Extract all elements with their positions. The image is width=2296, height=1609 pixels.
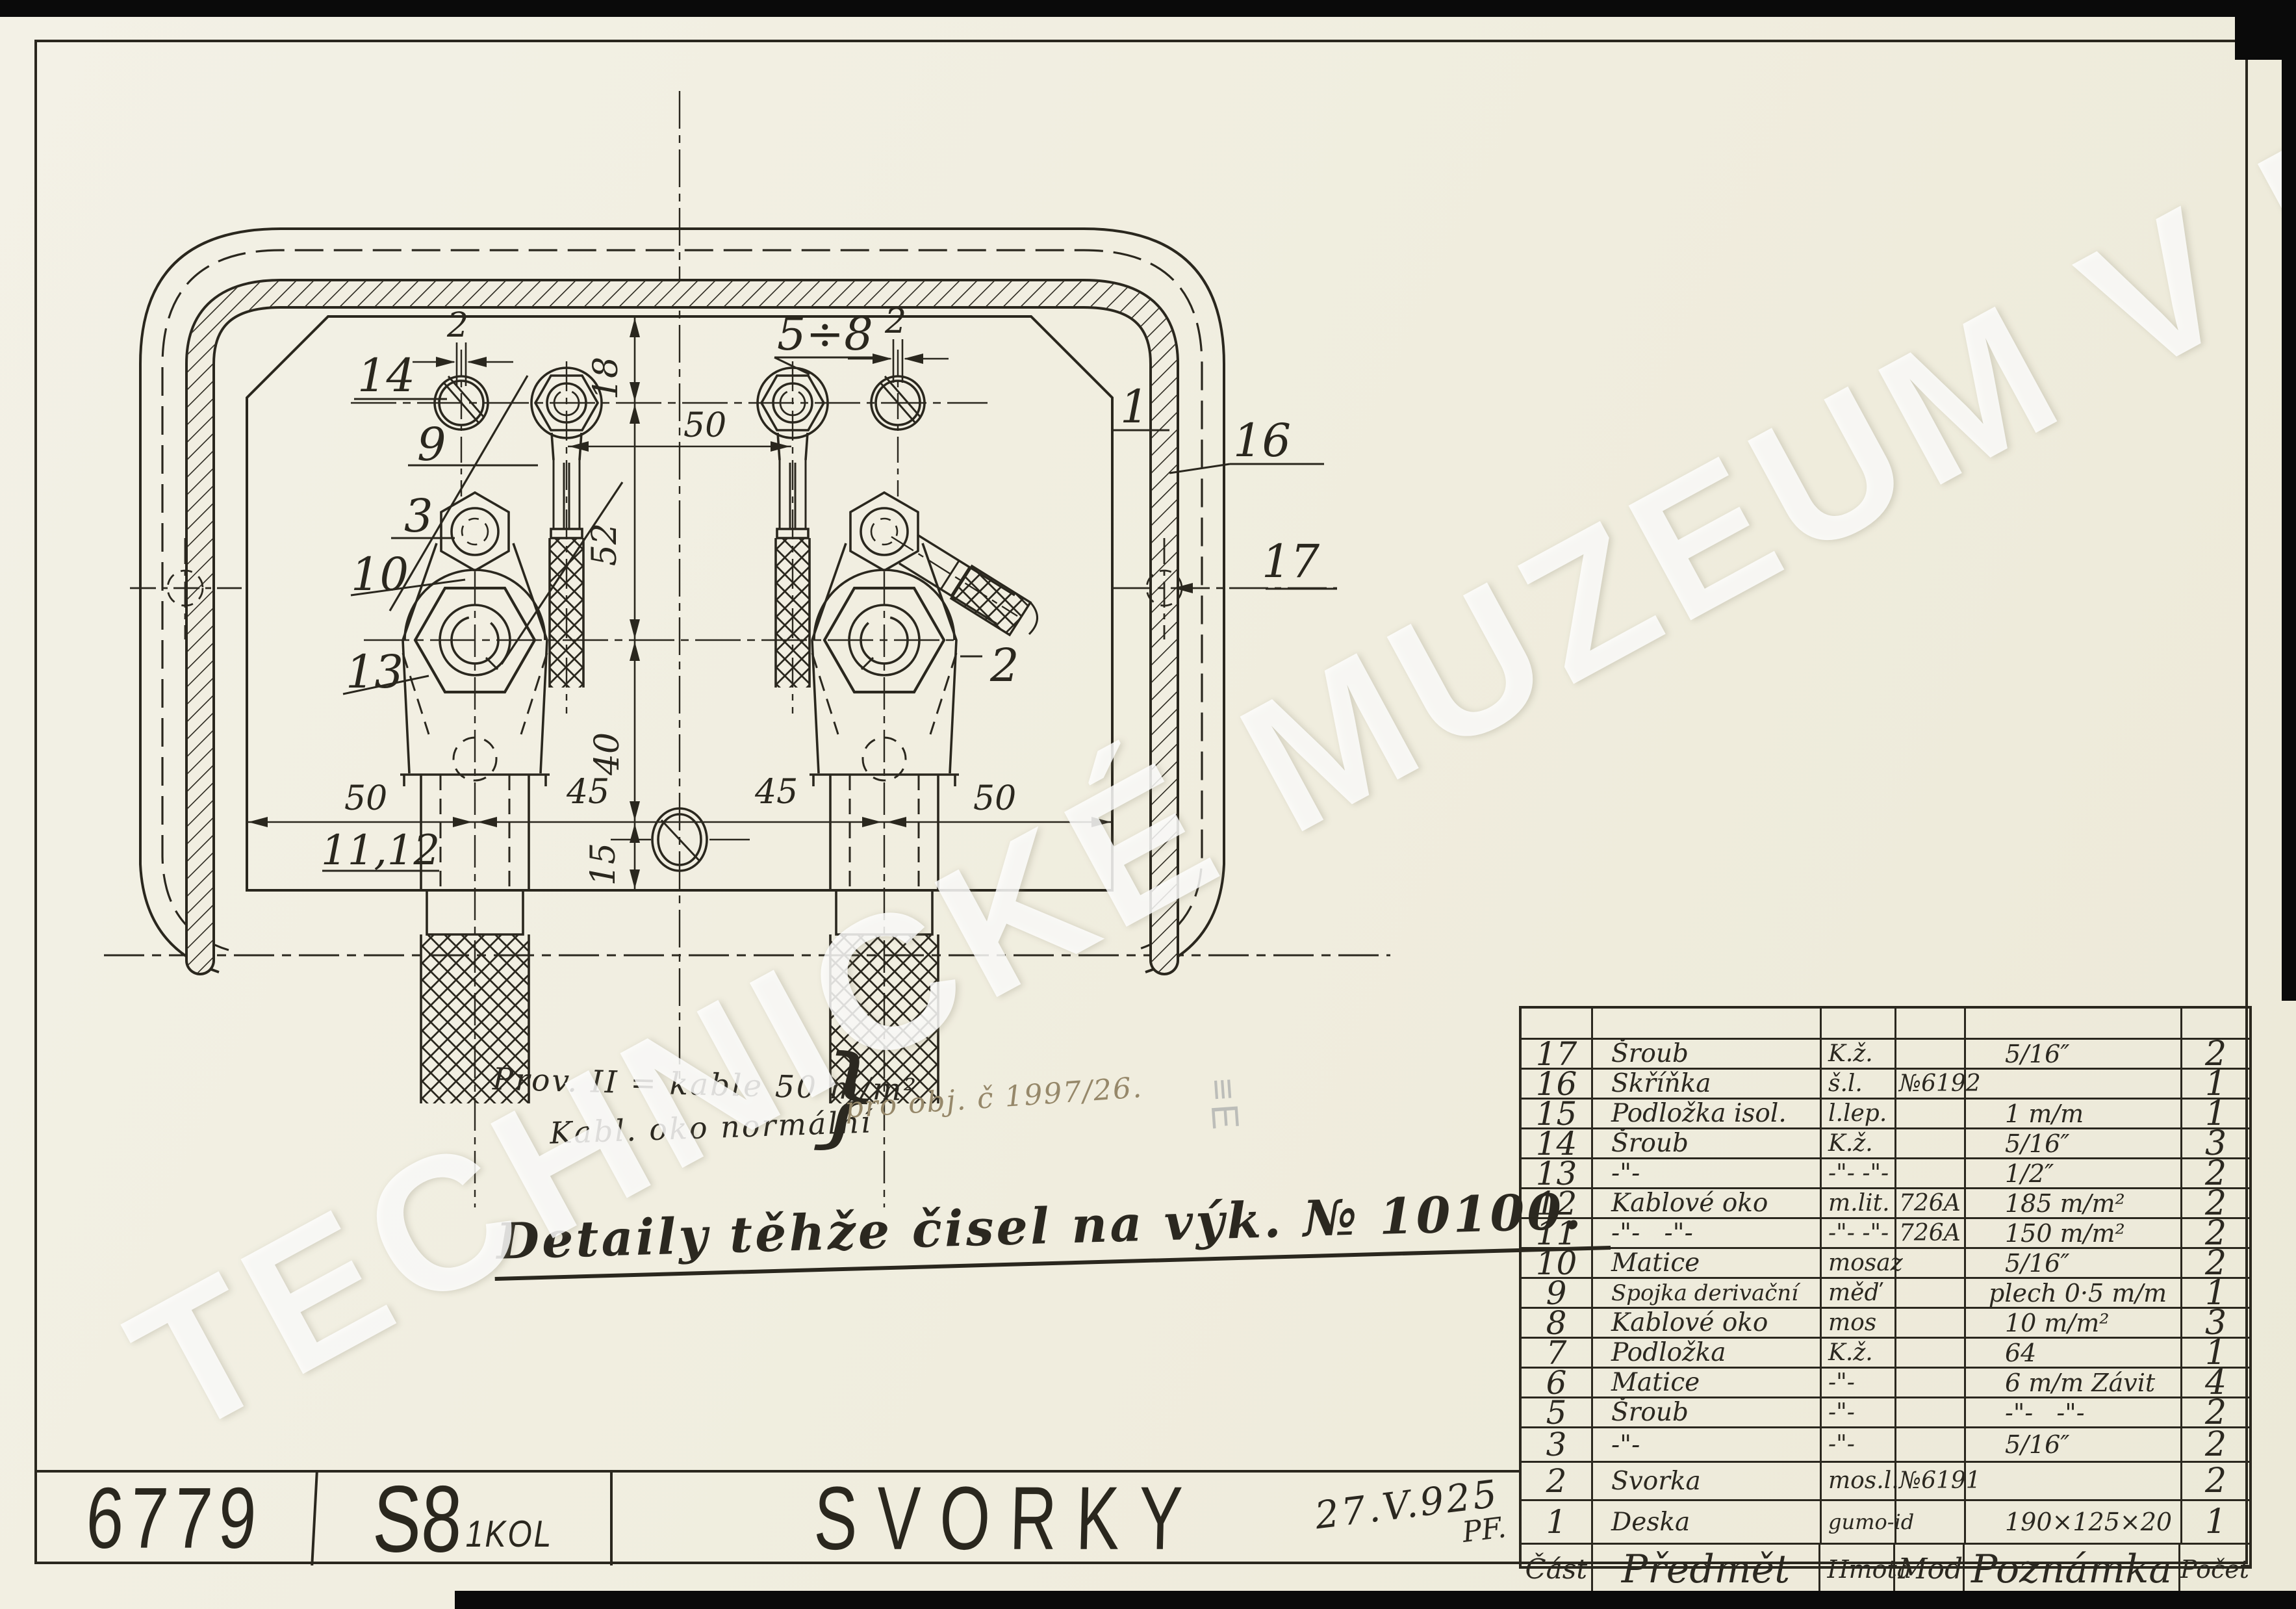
cell-predmet: Matice [1593,1369,1822,1397]
cell-mod [1896,1279,1966,1307]
dim-50-br: 50 [973,779,1016,818]
cell-predmet: -"- [1593,1428,1822,1461]
cell-pocet: 2 [2182,1398,2249,1426]
dim-40: 40 [588,732,627,776]
table-row: 2Svorkamos.l.№61912 [1522,1463,2249,1501]
parts-table: 17ŠroubK.ž.5/16″2 16Skříňkaš.l.№61921 15… [1519,1006,2252,1569]
cell-predmet: Skříňka [1593,1070,1822,1098]
dim-18: 18 [587,357,626,400]
cell-mod: №6191 [1896,1463,1966,1499]
callout-17: 17 [1262,535,1320,588]
cell-hmota: K.ž. [1822,1339,1896,1367]
callout-5-8: 5÷8 [777,307,873,361]
cell-hmota: mos.l. [1822,1463,1896,1499]
table-row: 15Podložka isol.l.lep.1 m/m1 [1522,1100,2249,1129]
cell-poznamka: 6 m/m Závit [1966,1369,2182,1397]
cell-cast: 5 [1522,1398,1593,1426]
center-lines [104,91,1390,1207]
cell-predmet: Spojka derivační [1593,1279,1822,1307]
header-mod: Mod [1895,1545,1965,1594]
cell-pocet: 2 [2182,1159,2249,1187]
cell-poznamka: 190×125×20 [1966,1501,2182,1543]
cell-pocet: 1 [2182,1279,2249,1307]
cell-poznamka: 150 m/m² [1966,1219,2182,1247]
callout-13: 13 [346,645,403,699]
table-row: 13-"--"- -"-1/2″2 [1522,1159,2249,1189]
cell-predmet: Šroub [1593,1129,1822,1157]
table-row: 10Maticemosaz5/16″2 [1522,1249,2249,1279]
dim-15: 15 [584,843,623,886]
header-poznamka: Poznámka [1965,1545,2180,1594]
cell-cast: 14 [1522,1129,1593,1157]
cell-mod [1896,1129,1966,1157]
cell-pocet: 2 [2182,1463,2249,1499]
series-cell: S8 1KOL [316,1473,613,1565]
cell-poznamka: 5/16″ [1966,1129,2182,1157]
cell-hmota: -"- [1822,1398,1896,1426]
dim-2-right: 2 [884,302,906,341]
cell-predmet: -"- [1593,1159,1822,1187]
cell-poznamka: 64 [1966,1339,2182,1367]
dim-52: 52 [585,523,624,566]
table-row: 7PodložkaK.ž.641 [1522,1339,2249,1369]
cell-predmet: Podložka [1593,1339,1822,1367]
cell-poznamka: plech 0·5 m/m [1966,1279,2182,1307]
cell-pocet: 2 [2182,1428,2249,1461]
table-row: 12Kablové okom.lit.726A185 m/m²2 [1522,1189,2249,1219]
drawing-number: 6779 [84,1469,265,1568]
callout-1: 1 [1120,380,1149,433]
cell-pocet: 2 [2182,1249,2249,1277]
table-row-empty [1522,1009,2249,1040]
drawing-title: SVORKY [813,1467,1203,1571]
table-header-row: Část Předmět Hmota Mod Poznámka Počet [1522,1545,2249,1594]
cell-cast: 15 [1522,1100,1593,1127]
cell-poznamka: 1/2″ [1966,1159,2182,1187]
callout-2: 2 [989,639,1019,692]
cell-cast: 11 [1522,1219,1593,1247]
cell-hmota: m.lit. [1822,1189,1896,1217]
cell-cast: 17 [1522,1040,1593,1068]
cell-mod: №6192 [1896,1070,1966,1098]
cell-predmet: Svorka [1593,1463,1822,1499]
dim-50-top: 50 [683,406,726,445]
cell-mod [1896,1501,1966,1543]
cell-pocet: 1 [2182,1501,2249,1543]
cell-cast: 10 [1522,1249,1593,1277]
cell-cast: 7 [1522,1339,1593,1367]
callout-10: 10 [351,548,409,601]
cell-poznamka: 5/16″ [1966,1040,2182,1068]
header-cast: Část [1522,1545,1593,1594]
blueprint-page: 2 2 18 50 52 40 15 50 45 45 50 14 [0,0,2296,1609]
cell-cast: 16 [1522,1070,1593,1098]
cell-hmota: -"- -"- [1822,1159,1896,1187]
cell-predmet: -"- -"- [1593,1219,1822,1247]
cell-pocet: 2 [2182,1040,2249,1068]
cell-mod [1896,1369,1966,1397]
cell-hmota: l.lep. [1822,1100,1896,1127]
cell-hmota: -"- [1822,1369,1896,1397]
cell-pocet: 1 [2182,1100,2249,1127]
cell-poznamka [1966,1463,2182,1499]
header-pocet: Počet [2180,1545,2249,1594]
cell-cast: 13 [1522,1159,1593,1187]
cell-poznamka: 5/16″ [1966,1249,2182,1277]
table-row: 14ŠroubK.ž.5/16″3 [1522,1129,2249,1159]
cell-pocet: 3 [2182,1129,2249,1157]
title-block: 6779 S8 1KOL SVORKY 27.V.925 PF. [36,1470,1520,1565]
cell-cast: 2 [1522,1463,1593,1499]
cell-hmota: -"- -"- [1822,1219,1896,1247]
cell-mod [1896,1339,1966,1367]
callout-9: 9 [417,418,446,471]
drawing-number-cell: 6779 [33,1473,318,1565]
table-row: 8Kablové okomos10 m/m²3 [1522,1309,2249,1339]
cell-mod [1896,1428,1966,1461]
cell-pocet: 3 [2182,1309,2249,1337]
table-row: 5Šroub-"--"- -"-2 [1522,1398,2249,1428]
header-predmet: Předmět [1593,1545,1821,1594]
cell-hmota: K.ž. [1822,1129,1896,1157]
cell-hmota: měď [1822,1279,1896,1307]
cell-pocet: 2 [2182,1219,2249,1247]
table-row: 6Matice-"-6 m/m Závit4 [1522,1369,2249,1398]
cell-predmet: Kablové oko [1593,1189,1822,1217]
series-subscript: 1KOL [466,1513,554,1556]
cell-mod [1896,1249,1966,1277]
cell-pocet: 1 [2182,1339,2249,1367]
cell-poznamka: 5/16″ [1966,1428,2182,1461]
cell-poznamka [1966,1070,2182,1098]
title-cell: SVORKY 27.V.925 PF. [613,1473,1520,1565]
cell-mod [1896,1100,1966,1127]
cell-hmota: mos [1822,1309,1896,1337]
cell-mod [1896,1040,1966,1068]
cell-poznamka: 10 m/m² [1966,1309,2182,1337]
cell-cast: 9 [1522,1279,1593,1307]
stamp-artifact: ≡E [1201,1077,1248,1135]
cell-mod: 726A [1896,1189,1966,1217]
dim-2-left: 2 [446,306,468,345]
date-block: 27.V.925 PF. [1312,1471,1505,1567]
cell-poznamka: -"- -"- [1966,1398,2182,1426]
cell-mod [1896,1309,1966,1337]
cell-hmota: š.l. [1822,1070,1896,1098]
cell-cast: 8 [1522,1309,1593,1337]
cell-hmota: K.ž. [1822,1040,1896,1068]
cell-cast: 6 [1522,1369,1593,1397]
cell-poznamka: 185 m/m² [1966,1189,2182,1217]
cell-pocet: 2 [2182,1189,2249,1217]
callout-11-12: 11,12 [321,827,440,875]
cell-mod [1896,1159,1966,1187]
header-hmota: Hmota [1820,1545,1895,1594]
table-row: 1Deskagumo-id190×125×201 [1522,1501,2249,1545]
cell-cast: 12 [1522,1189,1593,1217]
callout-3: 3 [404,489,433,543]
photo-edge-bottom [455,1591,2296,1609]
cell-hmota: -"- [1822,1428,1896,1461]
cell-predmet: Kablové oko [1593,1309,1822,1337]
dim-45-l: 45 [566,773,609,812]
photo-edge-top [0,0,2296,17]
cell-predmet: Deska [1593,1501,1822,1543]
dim-50-bl: 50 [344,779,387,818]
cell-cast: 3 [1522,1428,1593,1461]
cell-hmota: mosaz [1822,1249,1896,1277]
photo-edge-right [2282,0,2296,1001]
cell-cast: 1 [1522,1501,1593,1543]
callout-16: 16 [1233,414,1291,467]
table-row: 3-"--"-5/16″2 [1522,1428,2249,1463]
cell-pocet: 4 [2182,1369,2249,1397]
series-code: S8 [370,1465,464,1574]
cell-predmet: Matice [1593,1249,1822,1277]
table-row: 16Skříňkaš.l.№61921 [1522,1070,2249,1100]
cell-poznamka: 1 m/m [1966,1100,2182,1127]
cell-predmet: Podložka isol. [1593,1100,1822,1127]
cell-predmet: Šroub [1593,1398,1822,1426]
callout-14: 14 [357,349,415,402]
cell-pocet: 1 [2182,1070,2249,1098]
cell-mod: 726A [1896,1219,1966,1247]
table-row: 17ŠroubK.ž.5/16″2 [1522,1040,2249,1070]
cell-mod [1896,1398,1966,1426]
right-terminal [758,350,1038,1103]
dim-45-r: 45 [754,773,798,812]
table-row: 9Spojka derivačníměďplech 0·5 m/m1 [1522,1279,2249,1309]
table-row: 11-"- -"--"- -"-726A150 m/m²2 [1522,1219,2249,1249]
cell-hmota: gumo-id [1822,1501,1896,1543]
cell-predmet: Šroub [1593,1040,1822,1068]
